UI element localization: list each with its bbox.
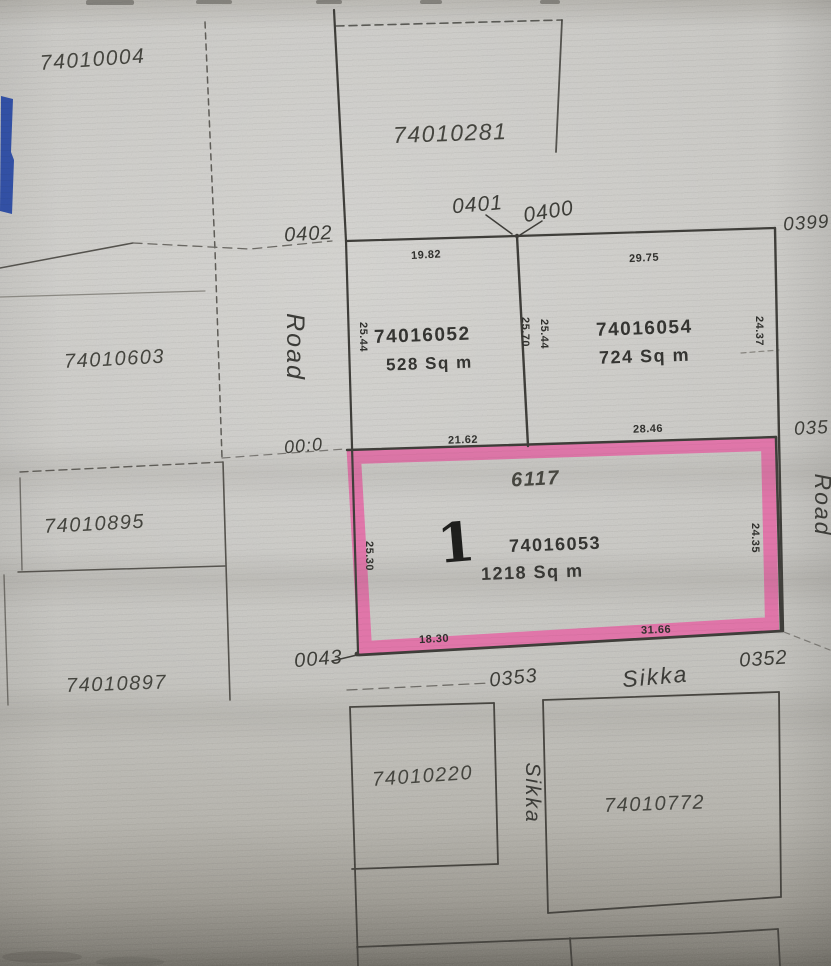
dimension-24-37: 24.37: [753, 316, 765, 346]
sikka-label-lane: Sikka: [521, 762, 544, 823]
dimension-25-70: 25.70: [519, 317, 531, 347]
cadastral-map-scan: 74010004 74010281 74010603 74010895 7401…: [0, 0, 831, 966]
dimension-24-35: 24.35: [749, 523, 761, 553]
corner-marker-0401: 0401: [451, 191, 504, 218]
dimension-28-46: 28.46: [633, 423, 663, 436]
road-label-left: Road: [281, 313, 309, 381]
map-drawing: 74010004 74010281 74010603 74010895 7401…: [0, 0, 831, 966]
dimension-25-44-inner: 25.44: [538, 319, 550, 349]
dimension-25-30: 25.30: [363, 541, 375, 571]
plot-label-74010281: 74010281: [393, 118, 508, 148]
corner-marker-0043: 0043: [293, 646, 343, 672]
parcel-area-74016052: 528 Sq m: [386, 353, 473, 375]
corner-marker-0352: 0352: [738, 646, 788, 671]
corner-marker-00-0: 00:0: [283, 434, 324, 457]
dimension-21-62: 21.62: [448, 434, 478, 447]
parcel-area-74016053: 1218 Sq m: [481, 560, 584, 584]
parcel-area-74016054: 724 Sq m: [599, 345, 691, 368]
parcel-number-74016053: 74016053: [509, 533, 602, 556]
corner-marker-0402: 0402: [284, 222, 334, 247]
blue-pen-mark: [0, 96, 14, 214]
plot-no-6117: 6117: [511, 467, 561, 492]
dimension-31-66: 31.66: [641, 624, 671, 637]
dimension-29-75: 29.75: [629, 252, 660, 266]
corner-marker-035: 035: [793, 417, 829, 440]
plot-label-74010897: 74010897: [66, 671, 168, 697]
handwritten-mark-1: 1: [435, 509, 478, 576]
parcel-number-74016054: 74016054: [596, 317, 693, 341]
road-label-right: Road: [810, 474, 831, 537]
dimension-25-44-left: 25.44: [357, 322, 369, 352]
plot-label-74010772: 74010772: [604, 791, 706, 817]
corner-marker-0399: 0399: [782, 211, 830, 235]
parcel-number-74016052: 74016052: [374, 324, 471, 348]
dimension-18-30: 18.30: [419, 633, 450, 647]
dimension-19-82: 19.82: [411, 248, 442, 262]
